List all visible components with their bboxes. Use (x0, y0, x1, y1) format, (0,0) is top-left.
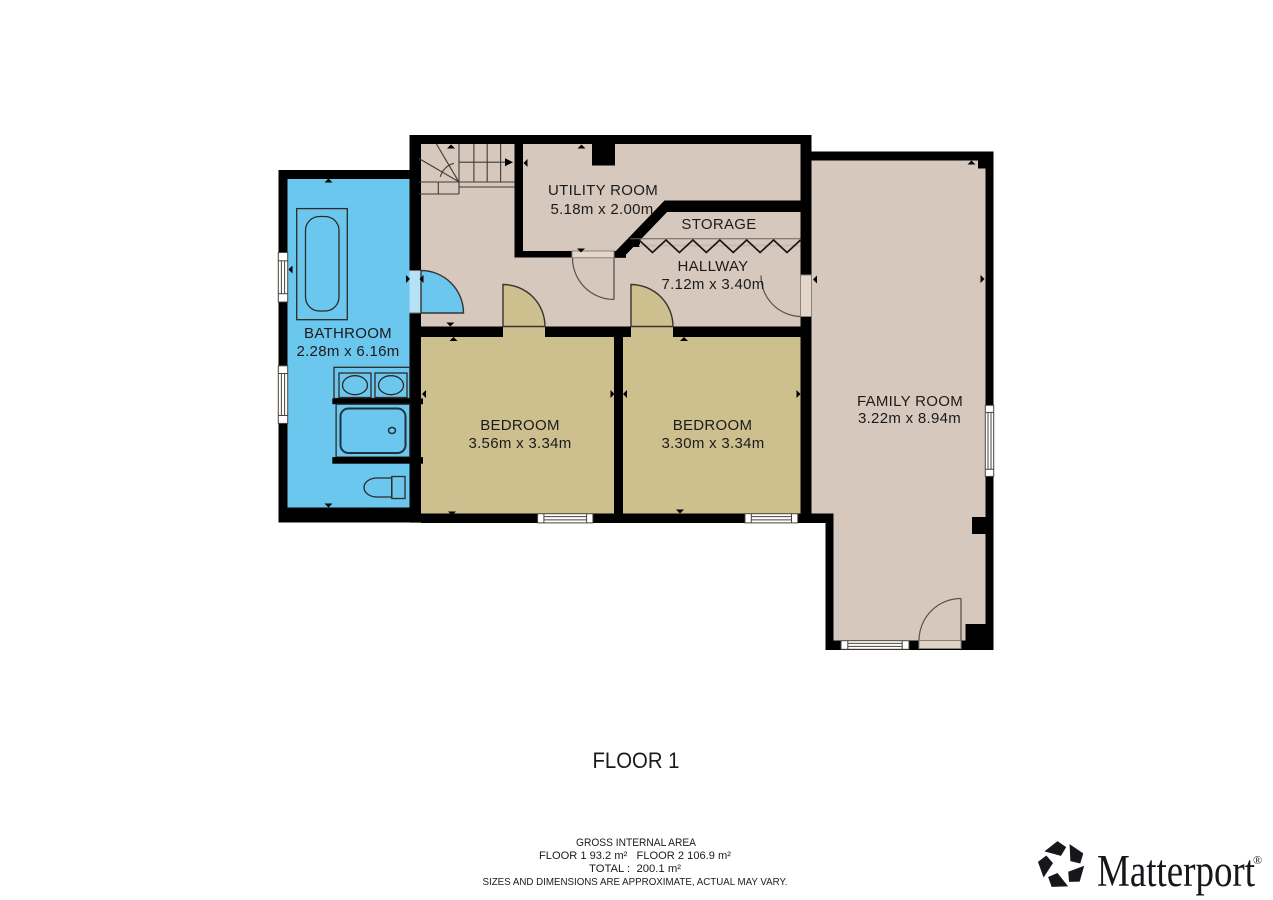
svg-text:2.28m x 6.16m: 2.28m x 6.16m (296, 343, 399, 360)
svg-text:FLOOR 1: FLOOR 1 (593, 748, 680, 773)
svg-text:5.18m x 2.00m: 5.18m x 2.00m (550, 201, 653, 218)
svg-text:3.22m x 8.94m: 3.22m x 8.94m (858, 410, 961, 427)
svg-text:STORAGE: STORAGE (681, 216, 756, 233)
svg-text:BEDROOM: BEDROOM (673, 417, 753, 434)
svg-text:FLOOR 1 93.2 m² FLOOR 2 106.: FLOOR 1 93.2 m² FLOOR 2 106.9 m² (539, 850, 731, 862)
svg-text:7.12m x 3.40m: 7.12m x 3.40m (661, 276, 764, 293)
svg-text:UTILITY ROOM: UTILITY ROOM (548, 182, 658, 199)
svg-text:3.56m x 3.34m: 3.56m x 3.34m (468, 435, 571, 452)
svg-text:BEDROOM: BEDROOM (480, 417, 560, 434)
svg-text:GROSS INTERNAL AREA: GROSS INTERNAL AREA (576, 837, 697, 849)
svg-text:SIZES AND DIMENSIONS ARE APPRO: SIZES AND DIMENSIONS ARE APPROXIMATE, AC… (483, 876, 788, 888)
svg-text:BATHROOM: BATHROOM (304, 325, 392, 342)
svg-text:Matterport: Matterport (1097, 846, 1255, 896)
svg-text:FAMILY ROOM: FAMILY ROOM (857, 393, 963, 410)
svg-text:HALLWAY: HALLWAY (677, 258, 748, 275)
svg-text:3.30m x 3.34m: 3.30m x 3.34m (661, 435, 764, 452)
svg-text:®: ® (1253, 853, 1262, 867)
svg-text:TOTAL : 200.1 m²: TOTAL : 200.1 m² (589, 863, 681, 875)
